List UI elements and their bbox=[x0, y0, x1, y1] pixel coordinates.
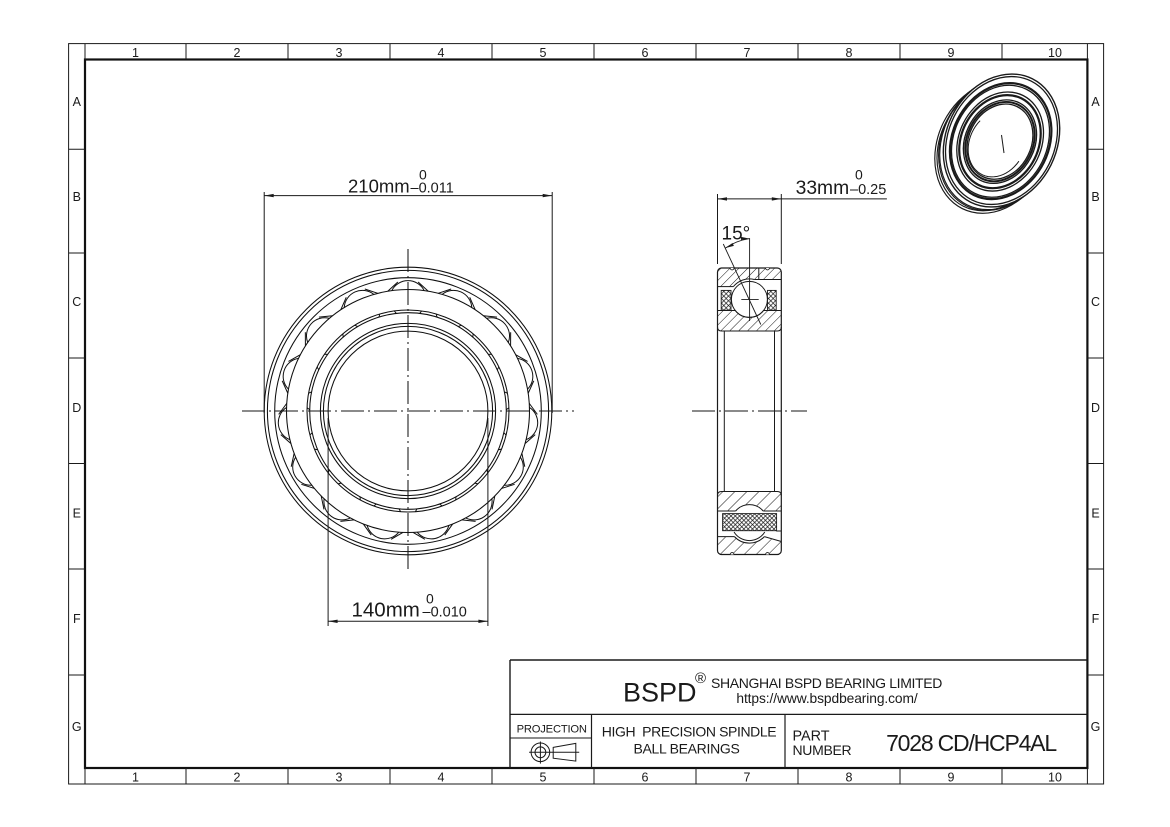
svg-text:G: G bbox=[72, 720, 82, 734]
svg-text:BSPD: BSPD bbox=[623, 678, 697, 708]
svg-text:C: C bbox=[1091, 295, 1100, 309]
svg-text:F: F bbox=[1092, 612, 1100, 626]
svg-text:7: 7 bbox=[744, 46, 751, 60]
svg-text:8: 8 bbox=[846, 46, 853, 60]
svg-text:BALL BEARINGS: BALL BEARINGS bbox=[633, 741, 739, 757]
svg-text:9: 9 bbox=[948, 771, 955, 785]
svg-text:2: 2 bbox=[234, 46, 241, 60]
svg-text:6: 6 bbox=[642, 46, 649, 60]
svg-text:1: 1 bbox=[132, 46, 139, 60]
svg-text:–0.011: –0.011 bbox=[411, 181, 454, 197]
svg-text:3: 3 bbox=[336, 771, 343, 785]
svg-text:210mm: 210mm bbox=[348, 176, 410, 197]
svg-text:E: E bbox=[1091, 507, 1099, 521]
svg-text:NUMBER: NUMBER bbox=[793, 742, 852, 758]
svg-text:15°: 15° bbox=[722, 224, 751, 245]
svg-text:140mm: 140mm bbox=[352, 599, 420, 622]
svg-text:0: 0 bbox=[419, 167, 427, 183]
svg-text:7028 CD/HCP4AL: 7028 CD/HCP4AL bbox=[886, 730, 1057, 756]
svg-text:C: C bbox=[72, 295, 81, 309]
svg-text:0: 0 bbox=[426, 591, 434, 607]
svg-text:PROJECTION: PROJECTION bbox=[517, 724, 587, 736]
svg-text:9: 9 bbox=[948, 46, 955, 60]
svg-text:B: B bbox=[73, 190, 81, 204]
svg-text:5: 5 bbox=[540, 46, 547, 60]
svg-text:B: B bbox=[1091, 190, 1099, 204]
svg-text:7: 7 bbox=[744, 771, 751, 785]
svg-text:–0.25: –0.25 bbox=[850, 182, 886, 198]
svg-text:SHANGHAI BSPD BEARING LIMITED: SHANGHAI BSPD BEARING LIMITED bbox=[711, 675, 942, 691]
svg-text:10: 10 bbox=[1048, 46, 1062, 60]
svg-text:HIGH PRECISION SPINDLE: HIGH PRECISION SPINDLE bbox=[602, 724, 776, 740]
svg-text:1: 1 bbox=[132, 771, 139, 785]
svg-text:G: G bbox=[1091, 720, 1101, 734]
svg-text:8: 8 bbox=[846, 771, 853, 785]
svg-text:F: F bbox=[73, 612, 81, 626]
svg-text:D: D bbox=[72, 401, 81, 415]
svg-text:A: A bbox=[73, 95, 82, 109]
svg-text:10: 10 bbox=[1048, 771, 1062, 785]
svg-text:®: ® bbox=[695, 670, 706, 687]
svg-text:0: 0 bbox=[855, 167, 863, 183]
svg-text:5: 5 bbox=[540, 771, 547, 785]
svg-text:https://www.bspdbearing.com/: https://www.bspdbearing.com/ bbox=[736, 691, 918, 706]
svg-text:–0.010: –0.010 bbox=[423, 605, 467, 621]
svg-text:4: 4 bbox=[438, 46, 445, 60]
svg-text:3: 3 bbox=[336, 46, 343, 60]
svg-text:D: D bbox=[1091, 401, 1100, 415]
svg-text:6: 6 bbox=[642, 771, 649, 785]
svg-text:E: E bbox=[73, 507, 81, 521]
svg-text:33mm: 33mm bbox=[796, 178, 850, 199]
svg-text:2: 2 bbox=[234, 771, 241, 785]
svg-text:A: A bbox=[1091, 95, 1100, 109]
svg-text:4: 4 bbox=[438, 771, 445, 785]
